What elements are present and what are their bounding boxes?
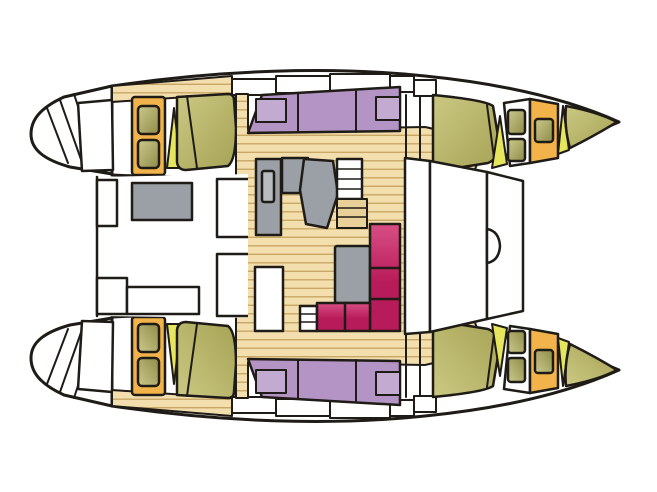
- foredeck-panel: [430, 161, 487, 332]
- cockpit-table: [132, 183, 192, 220]
- sofa-horizontal-arm: [317, 303, 370, 331]
- saloon-front-wall: [405, 158, 430, 334]
- saloon-cabinet: [255, 267, 283, 331]
- sofa-vertical-arm: [370, 224, 400, 331]
- aft-cockpit: [97, 174, 256, 318]
- cockpit-seat: [97, 180, 117, 226]
- deck-plan-svg: [0, 0, 657, 492]
- cockpit-bench: [127, 287, 199, 314]
- boat-floor-plan: [0, 0, 657, 492]
- foredeck: [430, 161, 523, 332]
- wood-steps: [337, 199, 367, 228]
- saloon-entry-steps: [300, 306, 317, 331]
- dinette-table: [335, 246, 370, 303]
- galley: [256, 158, 367, 235]
- cockpit-locker: [97, 278, 127, 314]
- galley-sink: [262, 171, 274, 202]
- saloon: [248, 158, 407, 331]
